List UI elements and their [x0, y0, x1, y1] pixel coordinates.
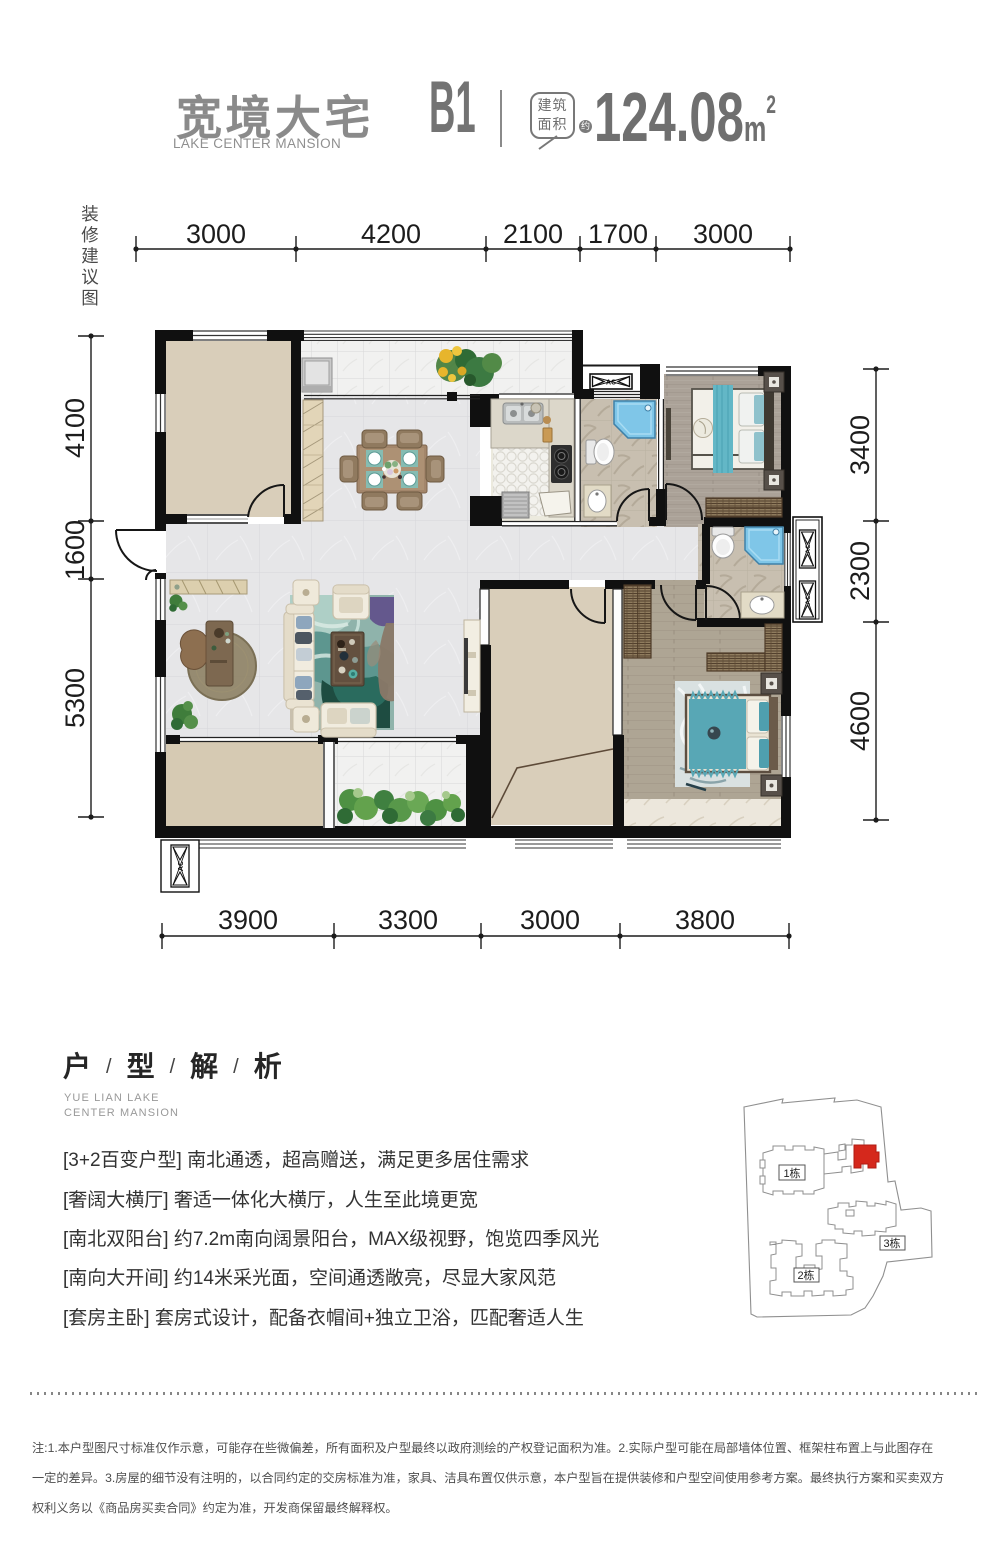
svg-text:4100: 4100 — [60, 398, 90, 458]
svg-text:5300: 5300 — [60, 668, 90, 728]
svg-text:3900: 3900 — [218, 905, 278, 935]
svg-text:3300: 3300 — [378, 905, 438, 935]
svg-text:AC: AC — [606, 380, 616, 387]
svg-text:2100: 2100 — [503, 219, 563, 249]
svg-text:3000: 3000 — [520, 905, 580, 935]
svg-text:3400: 3400 — [845, 415, 875, 475]
svg-text:1600: 1600 — [60, 520, 90, 580]
svg-text:3800: 3800 — [675, 905, 735, 935]
svg-text:3栋: 3栋 — [883, 1236, 900, 1250]
svg-text:AC: AC — [178, 861, 185, 871]
svg-text:4600: 4600 — [845, 691, 875, 751]
svg-text:AC: AC — [805, 544, 812, 554]
svg-text:3000: 3000 — [693, 219, 753, 249]
svg-text:2栋: 2栋 — [797, 1268, 814, 1282]
svg-text:1栋: 1栋 — [783, 1166, 800, 1180]
svg-text:2300: 2300 — [845, 541, 875, 601]
svg-text:3000: 3000 — [186, 219, 246, 249]
svg-text:1700: 1700 — [588, 219, 648, 249]
svg-text:4200: 4200 — [361, 219, 421, 249]
svg-text:AC: AC — [805, 595, 812, 605]
